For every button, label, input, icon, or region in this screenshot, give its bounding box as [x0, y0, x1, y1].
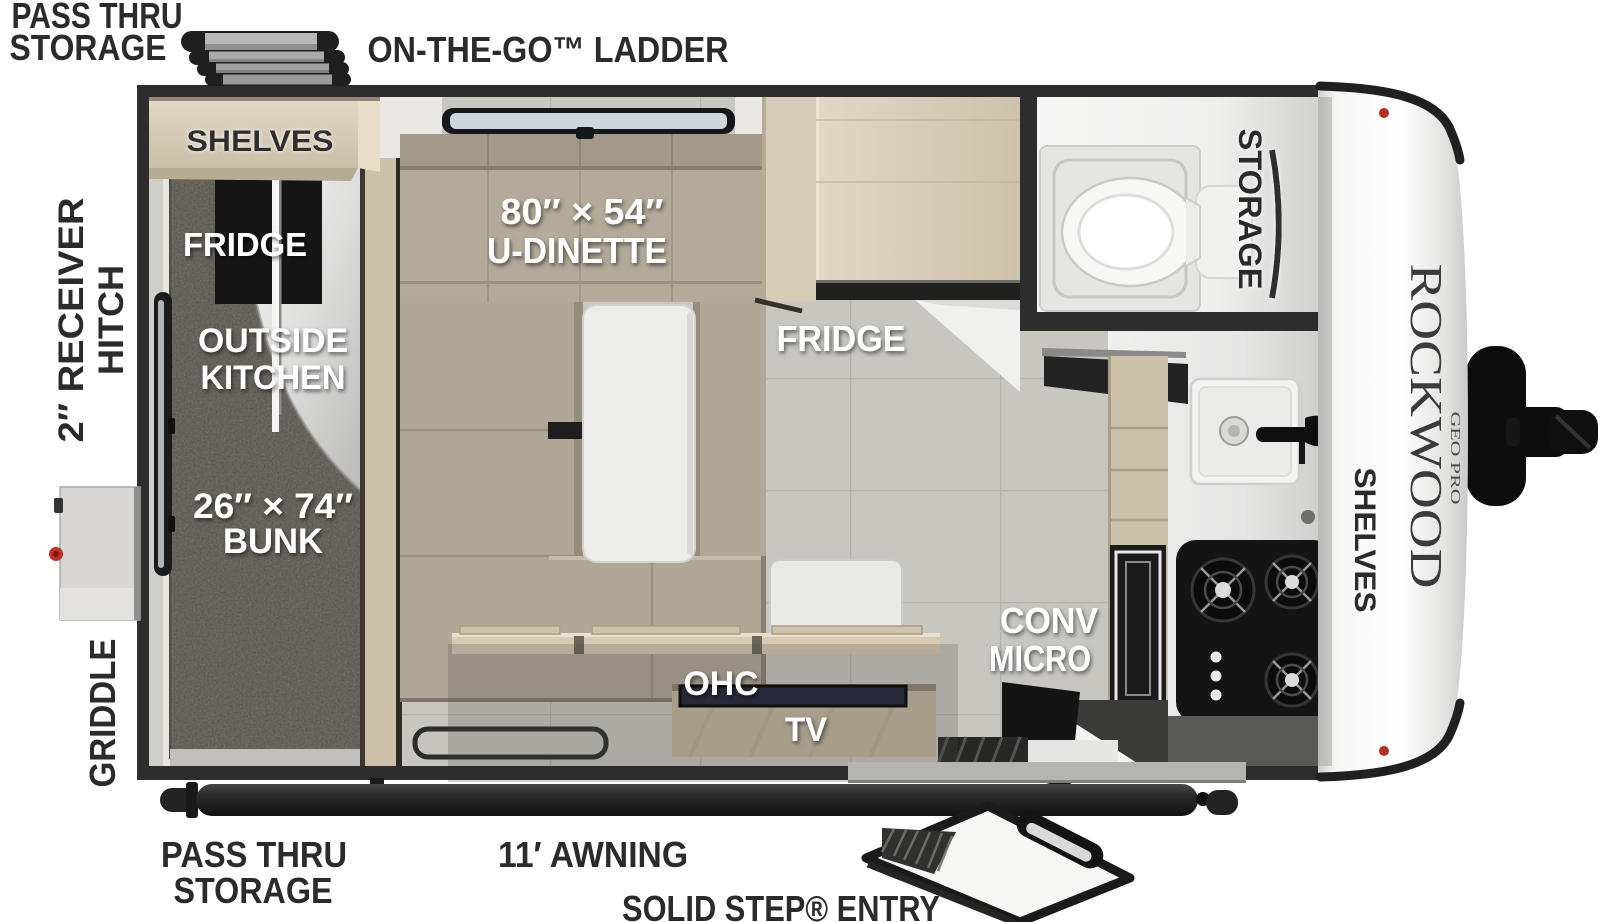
svg-text:BUNK: BUNK: [223, 522, 323, 561]
svg-text:26″ × 74″: 26″ × 74″: [193, 487, 353, 526]
svg-text:KITCHEN: KITCHEN: [201, 359, 346, 397]
svg-text:ROCKWOOD: ROCKWOOD: [1401, 264, 1452, 589]
svg-text:SHELVES: SHELVES: [187, 125, 334, 158]
svg-text:U-DINETTE: U-DINETTE: [487, 230, 667, 271]
svg-text:MICRO: MICRO: [989, 638, 1091, 679]
svg-text:TV: TV: [785, 711, 827, 749]
svg-text:FRIDGE: FRIDGE: [183, 226, 307, 263]
svg-text:ON-THE-GO™ LADDER: ON-THE-GO™ LADDER: [368, 29, 729, 70]
svg-text:80″ × 54″: 80″ × 54″: [501, 191, 664, 232]
svg-text:CONV: CONV: [1000, 600, 1098, 641]
svg-text:SOLID STEP® ENTRY: SOLID STEP® ENTRY: [622, 888, 940, 922]
svg-text:11′ AWNING: 11′ AWNING: [498, 834, 688, 875]
svg-text:GRIDDLE: GRIDDLE: [82, 639, 123, 788]
svg-text:GEO PRO: GEO PRO: [1447, 412, 1462, 505]
svg-text:STORAGE: STORAGE: [174, 870, 333, 911]
svg-text:HITCH: HITCH: [92, 265, 131, 375]
svg-text:SHELVES: SHELVES: [1348, 468, 1381, 613]
svg-text:FRIDGE: FRIDGE: [777, 318, 906, 359]
svg-text:2″ RECEIVER: 2″ RECEIVER: [52, 198, 91, 443]
svg-text:OHC: OHC: [684, 665, 759, 703]
svg-text:STORAGE: STORAGE: [1232, 129, 1268, 290]
svg-text:STORAGE: STORAGE: [10, 27, 167, 68]
svg-text:PASS THRU: PASS THRU: [161, 834, 347, 875]
svg-text:OUTSIDE: OUTSIDE: [198, 322, 348, 360]
